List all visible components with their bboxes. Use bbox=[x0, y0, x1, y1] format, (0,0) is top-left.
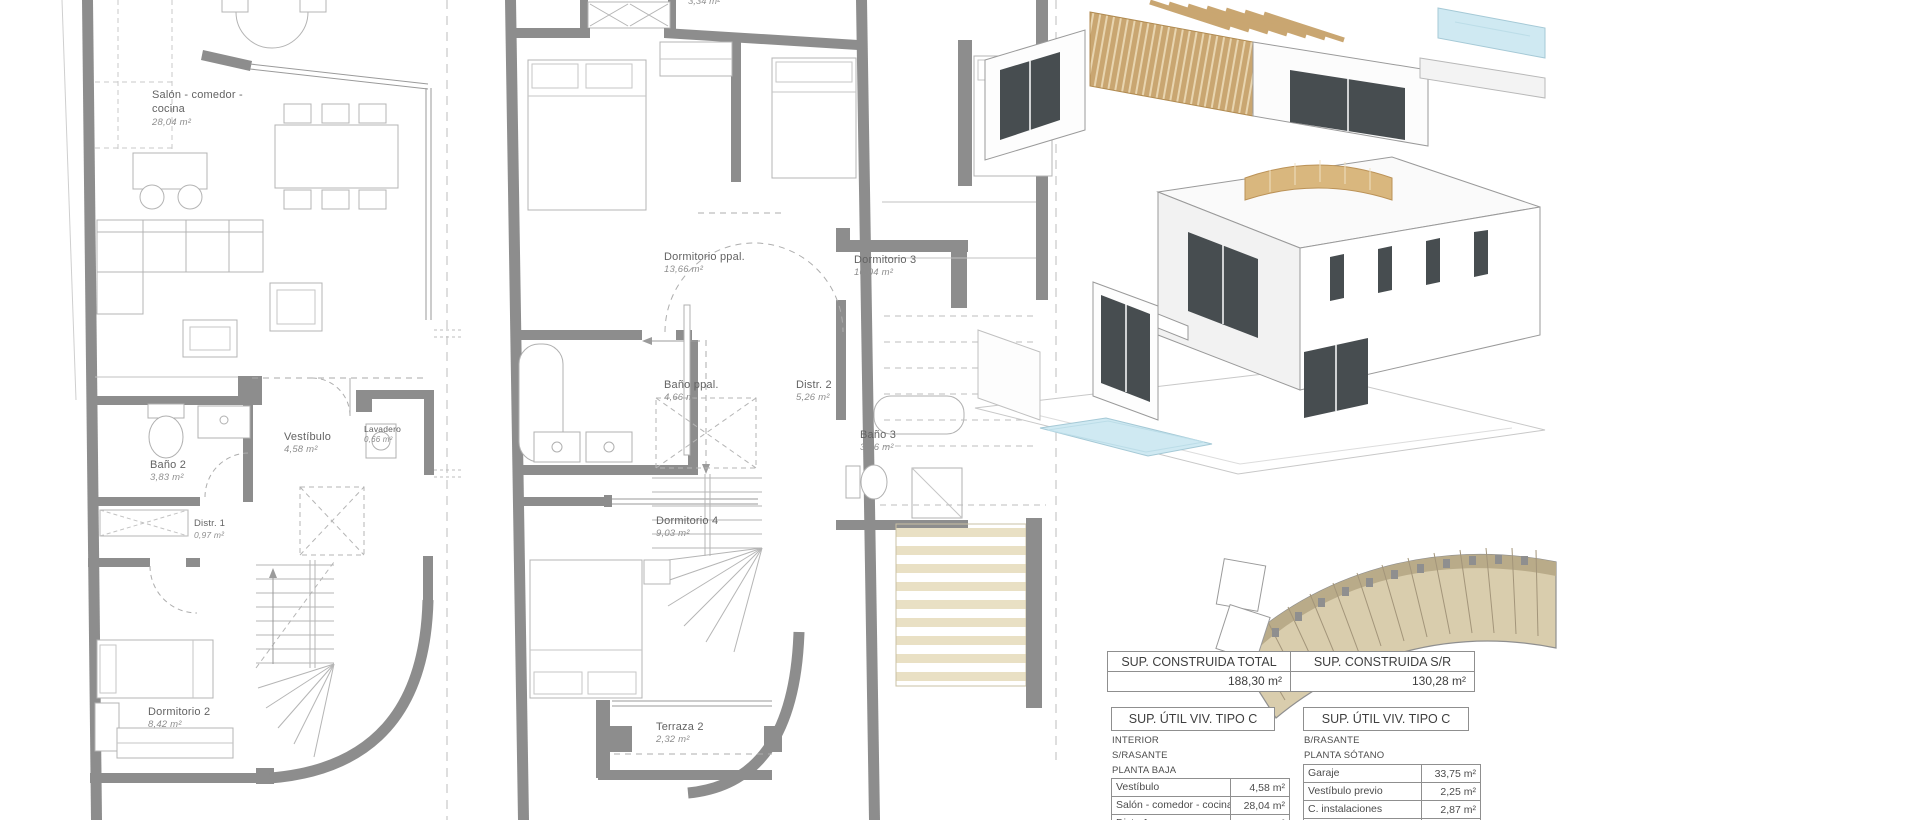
exterior-render-axon bbox=[975, 157, 1545, 474]
row-label: Vestíbulo bbox=[1112, 779, 1231, 796]
row-value: 28,04 m² bbox=[1231, 800, 1289, 812]
table-row: Garaje 33,75 m² bbox=[1304, 765, 1480, 782]
table-row: Vestíbulo 4,58 m² bbox=[1112, 779, 1289, 796]
room-area: 3,34 m² bbox=[688, 0, 720, 7]
built-sr-header: SUP. CONSTRUIDA S/R bbox=[1291, 652, 1474, 671]
util-right-title: SUP. ÚTIL VIV. TIPO C bbox=[1303, 707, 1469, 731]
meta-brasante: B/RASANTE bbox=[1304, 733, 1384, 748]
util-left-title: SUP. ÚTIL VIV. TIPO C bbox=[1111, 707, 1275, 731]
room-label-dormitorio-ppal: Dormitorio ppal. 13,66 m² bbox=[664, 250, 745, 277]
row-value: 2,87 m² bbox=[1422, 804, 1480, 816]
room-area: 4,66 m² bbox=[664, 392, 719, 404]
util-left-meta: INTERIOR S/RASANTE PLANTA BAJA bbox=[1112, 733, 1176, 778]
room-label-bano3: Baño 3 3,36 m² bbox=[860, 428, 896, 455]
built-total-header: SUP. CONSTRUIDA TOTAL bbox=[1108, 652, 1291, 671]
exterior-render-top bbox=[985, 2, 1545, 160]
room-name: Dormitorio ppal. bbox=[664, 251, 745, 263]
meta-srasante: S/RASANTE bbox=[1112, 748, 1176, 763]
room-name: Distr. 1 bbox=[194, 518, 225, 529]
room-label-dormitorio4: Dormitorio 4 9,03 m² bbox=[656, 514, 718, 541]
room-label-vestibulo: Vestíbulo 4,58 m² bbox=[284, 430, 331, 457]
util-left-rows: Vestíbulo 4,58 m² Salón - comedor - coci… bbox=[1111, 778, 1290, 820]
row-value: 33,75 m² bbox=[1422, 768, 1480, 780]
meta-interior: INTERIOR bbox=[1112, 733, 1176, 748]
room-name: Distr. 2 bbox=[796, 379, 832, 391]
room-area: 0,97 m² bbox=[194, 530, 225, 541]
table-row: Vestíbulo previo 2,25 m² bbox=[1304, 782, 1480, 800]
room-label-distr1: Distr. 1 0,97 m² bbox=[194, 518, 225, 541]
ground-floor-plan bbox=[62, 0, 462, 820]
room-area: 8,42 m² bbox=[148, 719, 210, 731]
row-value: 2,25 m² bbox=[1422, 786, 1480, 798]
room-label-salon: Salón - comedor - cocina 28,04 m² bbox=[152, 88, 248, 129]
room-name: Dormitorio 2 bbox=[148, 706, 210, 718]
row-value: 4,58 m² bbox=[1231, 782, 1289, 794]
room-area: 2,32 m² bbox=[656, 734, 704, 746]
built-surface-table: SUP. CONSTRUIDA TOTAL SUP. CONSTRUIDA S/… bbox=[1107, 651, 1475, 692]
room-name: Baño 2 bbox=[150, 459, 186, 471]
built-sr-value: 130,28 m² bbox=[1291, 671, 1474, 691]
util-right-rows: Garaje 33,75 m² Vestíbulo previo 2,25 m²… bbox=[1303, 764, 1481, 820]
plan-sheet: Salón - comedor - cocina 28,04 m² Baño 2… bbox=[0, 0, 1920, 820]
row-label: Vestíbulo previo bbox=[1304, 783, 1422, 800]
room-name: Vestíbulo bbox=[284, 431, 331, 443]
table-row: Salón - comedor - cocina 28,04 m² bbox=[1112, 796, 1289, 814]
room-label-terraza2: Terraza 2 2,32 m² bbox=[656, 720, 704, 747]
room-label-distr2: Distr. 2 5,26 m² bbox=[796, 378, 832, 405]
room-area: 3,36 m² bbox=[860, 442, 896, 454]
room-area: 9,03 m² bbox=[656, 528, 718, 540]
row-label: Distr. 1 bbox=[1112, 815, 1231, 820]
upper-floor-plan bbox=[505, 0, 1056, 820]
row-label: Salón - comedor - cocina bbox=[1112, 797, 1231, 814]
site-key-plan bbox=[1216, 548, 1556, 718]
room-label-partial-top: 3,34 m² bbox=[688, 0, 720, 7]
room-area: 13,66 m² bbox=[664, 264, 745, 276]
room-label-dormitorio3: Dormitorio 3 10,04 m² bbox=[854, 253, 930, 280]
row-label: C. instalaciones bbox=[1304, 801, 1422, 818]
neighbour-stairs bbox=[896, 518, 1042, 708]
built-total-value: 188,30 m² bbox=[1108, 671, 1291, 691]
room-area: 4,58 m² bbox=[284, 444, 331, 456]
plan-linework bbox=[0, 0, 1920, 820]
room-label-bano-ppal: Baño ppal. 4,66 m² bbox=[664, 378, 719, 405]
room-name: Dormitorio 4 bbox=[656, 515, 718, 527]
room-name: Baño 3 bbox=[860, 429, 896, 441]
table-row: Distr. 1 0,97 m² bbox=[1112, 814, 1289, 820]
room-label-lavadero: Lavadero 0,66 m² bbox=[364, 424, 422, 445]
room-name: Terraza 2 bbox=[656, 721, 704, 733]
room-area: 10,04 m² bbox=[854, 267, 930, 279]
row-label: Garaje bbox=[1304, 765, 1422, 782]
room-area: 0,66 m² bbox=[364, 435, 422, 445]
room-area: 3,83 m² bbox=[150, 472, 186, 484]
room-area: 28,04 m² bbox=[152, 117, 248, 129]
room-name: Baño ppal. bbox=[664, 379, 719, 391]
util-right-meta: B/RASANTE PLANTA SÓTANO bbox=[1304, 733, 1384, 763]
room-area: 5,26 m² bbox=[796, 392, 832, 404]
room-label-bano2: Baño 2 3,83 m² bbox=[150, 458, 186, 485]
room-name: Salón - comedor - cocina bbox=[152, 89, 243, 115]
room-name: Lavadero bbox=[364, 424, 401, 434]
room-label-dormitorio2: Dormitorio 2 8,42 m² bbox=[148, 705, 210, 732]
meta-planta-sotano: PLANTA SÓTANO bbox=[1304, 748, 1384, 763]
meta-planta-baja: PLANTA BAJA bbox=[1112, 763, 1176, 778]
room-name: Dormitorio 3 bbox=[854, 254, 916, 266]
table-row: C. instalaciones 2,87 m² bbox=[1304, 800, 1480, 818]
